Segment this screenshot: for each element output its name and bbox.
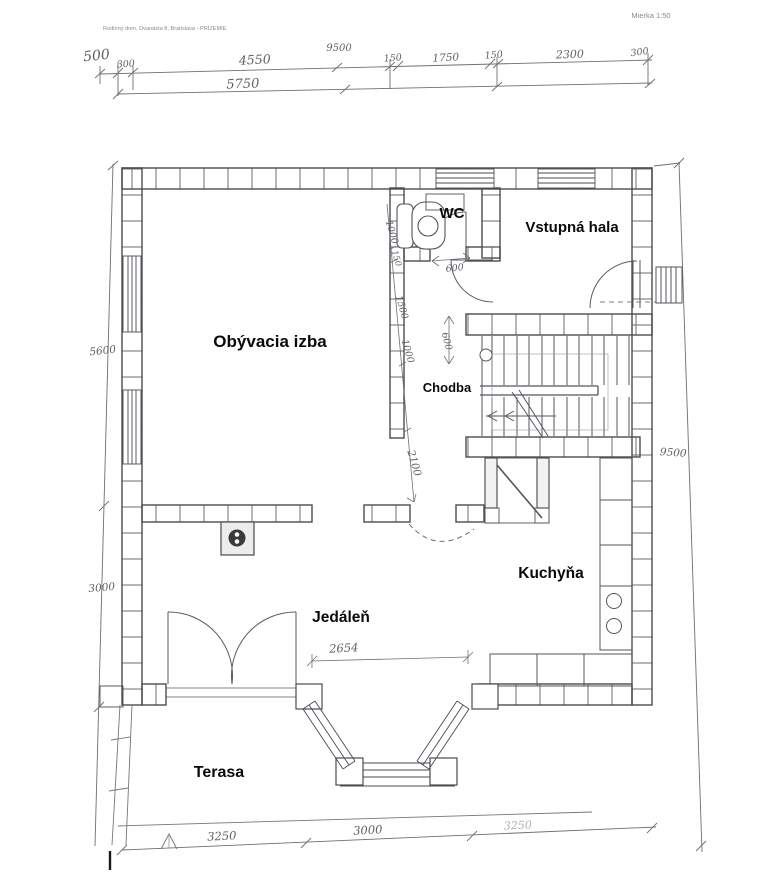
scale-note: Mierka 1:50 bbox=[631, 11, 670, 20]
window-left-1 bbox=[123, 256, 141, 332]
terrace-corner-block bbox=[100, 686, 123, 707]
window-top-wc bbox=[436, 169, 494, 188]
cooktop-burner-1 bbox=[607, 594, 622, 609]
dim-left: 5600 3000 bbox=[88, 161, 118, 846]
opening-corridor-dining bbox=[409, 524, 474, 541]
bay-window bbox=[296, 684, 498, 786]
dim-wc-door-text: 600 bbox=[445, 262, 464, 275]
dim-left-lower: 3000 bbox=[88, 581, 116, 595]
walls bbox=[122, 168, 652, 705]
dim-hall-clear-text: 600 bbox=[439, 331, 454, 351]
chimney-icon bbox=[221, 522, 254, 555]
dim-bay-opening: 2654 bbox=[307, 640, 473, 668]
stair-direction-arrow bbox=[486, 411, 556, 421]
label-entrance-hall: Vstupná hala bbox=[525, 219, 619, 236]
bay-post-2 bbox=[336, 758, 363, 785]
stairs bbox=[480, 336, 629, 438]
bay-post-4 bbox=[472, 684, 498, 709]
label-wc: WC bbox=[440, 205, 465, 222]
dim-total-top: 9500 bbox=[326, 43, 352, 54]
dim-hall-clear: 600 bbox=[439, 316, 454, 364]
dim-offset-left: 500 bbox=[82, 47, 110, 66]
kitchen-counter-bottom bbox=[490, 654, 632, 686]
dim-bottom-1: 3000 bbox=[353, 822, 383, 837]
label-dining-room: Jedáleň bbox=[312, 609, 370, 626]
kitchen-counter-right bbox=[600, 458, 632, 650]
understair-closet bbox=[485, 458, 549, 523]
window-left-2 bbox=[123, 390, 141, 464]
title-block: Rodinný dom, Dvanásta 8, Bratislava - PR… bbox=[103, 11, 671, 32]
wall-bottom-left-jamb bbox=[142, 684, 166, 705]
dim-bottom-0: 3250 bbox=[207, 828, 237, 843]
dim-top-0: 300 bbox=[116, 58, 135, 70]
floor-plan-scan: Rodinný dom, Dvanásta 8, Bratislava - PR… bbox=[0, 0, 775, 888]
dim-left-upper: 5600 bbox=[89, 344, 117, 359]
label-terrace: Terasa bbox=[194, 764, 245, 781]
dim-right-total: 9500 bbox=[659, 446, 687, 460]
dim-top: 500 9500 300 4550 150 1750 150 2300 300 … bbox=[82, 43, 655, 99]
dim-wc-door: 600 bbox=[432, 253, 470, 275]
dim-top-3: 1750 bbox=[432, 51, 460, 64]
project-title: Rodinný dom, Dvanásta 8, Bratislava - PR… bbox=[103, 25, 227, 32]
dim-bay-opening-text: 2654 bbox=[328, 640, 359, 656]
stair-break-line-2 bbox=[519, 390, 548, 436]
wall-stub-right bbox=[456, 505, 484, 522]
stair-treads-upper bbox=[492, 336, 629, 385]
wall-living-dining bbox=[142, 505, 312, 522]
toilet-icon bbox=[397, 202, 445, 249]
dim-subtotal-top: 5750 bbox=[226, 76, 260, 92]
dim-top-1: 4550 bbox=[237, 51, 271, 68]
wall-stair-south bbox=[466, 437, 640, 457]
floor-plan-drawing: Rodinný dom, Dvanásta 8, Bratislava - PR… bbox=[0, 0, 775, 888]
door-terrace-french bbox=[166, 612, 298, 697]
dim-top-4: 150 bbox=[484, 49, 503, 62]
dim-bottom-2: 3250 bbox=[504, 818, 533, 832]
stair-newel-post bbox=[480, 349, 492, 361]
dim-corridor-length: 2100 bbox=[404, 448, 423, 478]
entry-doormat-radiator bbox=[656, 267, 682, 303]
wall-stub-left bbox=[364, 505, 410, 522]
dim-top-2: 150 bbox=[383, 52, 402, 65]
label-corridor: Chodba bbox=[423, 380, 472, 395]
wall-hall-west bbox=[482, 188, 500, 258]
wall-bottom-right bbox=[478, 684, 632, 705]
stair-handrail bbox=[480, 386, 598, 395]
dim-top-5: 2300 bbox=[555, 48, 584, 62]
wall-hall-south bbox=[466, 314, 652, 335]
label-living-room: Obývacia izba bbox=[213, 332, 327, 351]
window-top-hall bbox=[538, 169, 595, 188]
label-kitchen: Kuchyňa bbox=[518, 565, 584, 582]
dim-right: 9500 bbox=[654, 158, 706, 852]
cooktop-burner-2 bbox=[607, 619, 622, 634]
dim-top-6: 300 bbox=[630, 46, 649, 59]
